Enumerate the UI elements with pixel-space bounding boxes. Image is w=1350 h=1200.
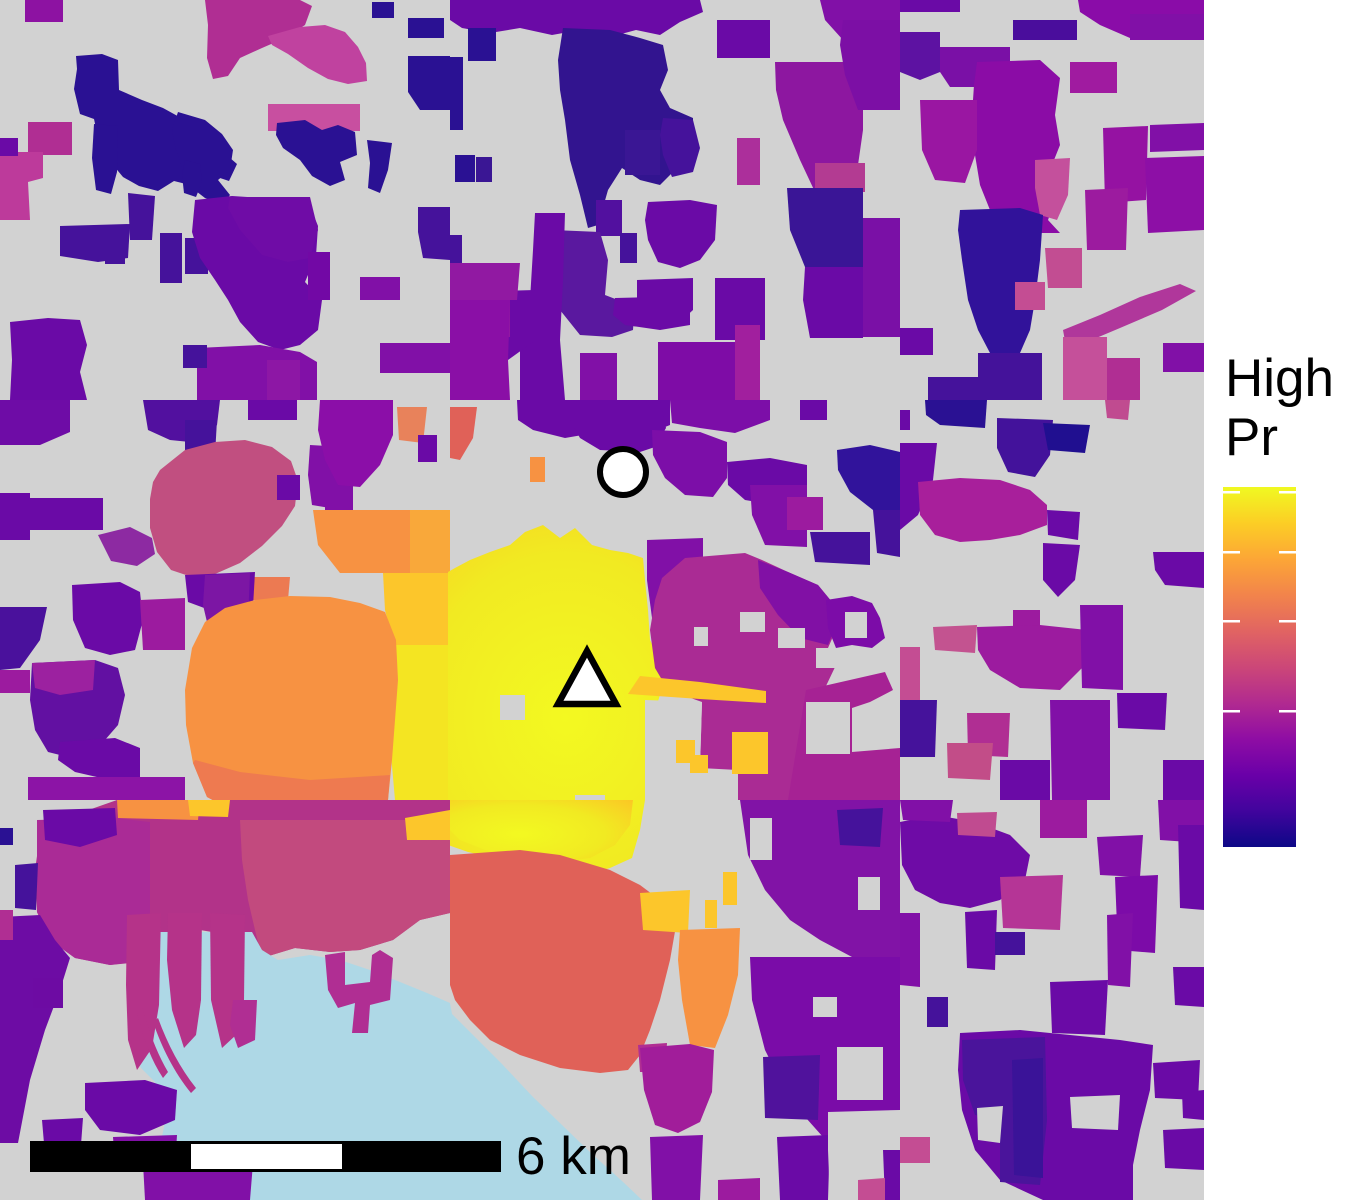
- svg-text:6 km: 6 km: [516, 1127, 631, 1186]
- svg-text:Pr: Pr: [1225, 408, 1278, 467]
- svg-text:High: High: [1225, 349, 1334, 408]
